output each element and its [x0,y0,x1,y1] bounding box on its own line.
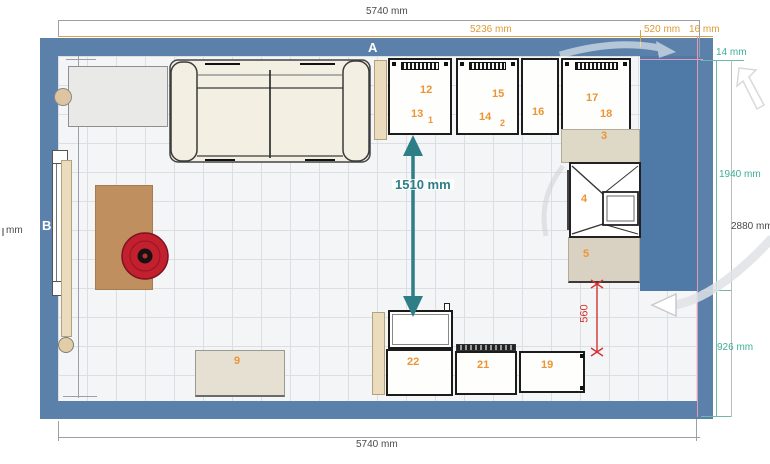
cabinet-side-panel-top[interactable] [374,60,387,140]
hinge-mark [565,62,569,66]
clearance-label: 1510 mm [392,179,454,190]
dim-top-corner: 16 mm [689,24,720,35]
dim-top-main: 5236 mm [470,24,512,35]
dim-top-right: 520 mm [644,24,680,35]
dim-tick [701,416,731,417]
item-label-9: 9 [234,355,240,367]
item-label-21: 21 [477,359,489,371]
wall-label-b: B [42,220,51,231]
item-label-22: 22 [407,356,419,368]
item-label-16: 16 [532,106,544,118]
dim-tick [63,396,97,397]
wall-cabinet-14-15[interactable] [456,58,519,135]
cabinet-side-panel-bottom[interactable] [372,312,385,395]
dim-right-lower: 926 mm [717,342,753,353]
item-label-2: 2 [500,117,505,129]
hinge-mark [460,62,464,66]
hinge-mark [580,354,584,358]
hinge-hatch [575,62,618,70]
wall-cabinet-12-13[interactable] [388,58,452,135]
dim-line-right-total [731,60,732,417]
dim-tick [640,30,641,47]
appliance-top[interactable] [388,310,453,349]
appliance-knob [444,303,450,311]
item-label-5: 5 [583,248,589,260]
floor-plan: A B 5740 mm 5236 mm 520 mm 16 mm 14 mm 1… [0,0,770,464]
hinge-hatch [401,62,439,70]
dim-right-upper: 1940 mm [719,169,761,180]
clearance-560-label: 560 [580,294,591,334]
item-label-18: 18 [600,108,612,120]
item-label-4: 4 [581,193,587,205]
dim-right-total: 2880 mm [731,221,770,232]
hinge-mark [511,62,515,66]
dim-left-partial: mm [6,225,23,236]
dim-bottom-total: 5740 mm [356,439,398,450]
guide-line-vertical [697,36,698,417]
window-glass-line [56,163,57,281]
wall-right[interactable] [697,38,713,419]
wall-cabinet-16[interactable] [521,58,559,135]
item-label-13: 13 [411,108,423,120]
curtain-panel[interactable] [61,160,72,337]
stool[interactable] [54,88,72,106]
dim-line-bottom-total [58,437,700,438]
item-label-1: 1 [428,114,433,126]
pointer-arrow-ne [737,68,764,109]
dim-right-gap: 14 mm [716,47,747,58]
base-cabinet-19[interactable] [519,351,585,393]
dim-tick [701,60,744,61]
dim-tick [58,20,59,36]
dim-tick [66,59,96,60]
appliance-inner-line [392,314,449,345]
wall-column[interactable] [640,56,697,291]
side-table[interactable] [68,66,168,127]
item-label-3: 3 [601,130,607,142]
dim-tick [696,419,697,441]
item-label-15: 15 [492,88,504,100]
dim-top-total: 5740 mm [366,6,408,17]
item-label-12: 12 [420,84,432,96]
dim-line-top-orange [58,36,713,37]
hinge-mark [580,386,584,390]
curtain-ball[interactable] [58,337,74,353]
dim-tick [2,228,4,236]
guide-line-horizontal [640,59,703,60]
base-cabinet-21[interactable] [455,351,517,395]
dim-line-top-total [58,20,700,21]
dim-line-right-teal [716,60,717,417]
counter-5[interactable] [568,237,640,283]
dim-tick [701,290,731,291]
hob-strip [456,344,516,351]
dim-tick [58,421,59,441]
item-label-14: 14 [479,111,491,123]
wall-label-a: A [368,42,377,53]
hinge-mark [444,62,448,66]
base-cabinet-22[interactable] [386,349,453,396]
item-label-19: 19 [541,359,553,371]
hinge-mark [392,62,396,66]
coffee-table[interactable] [95,185,153,290]
item-label-17: 17 [586,92,598,104]
hinge-mark [623,62,627,66]
hinge-hatch [469,62,506,70]
wall-bottom[interactable] [40,401,713,419]
